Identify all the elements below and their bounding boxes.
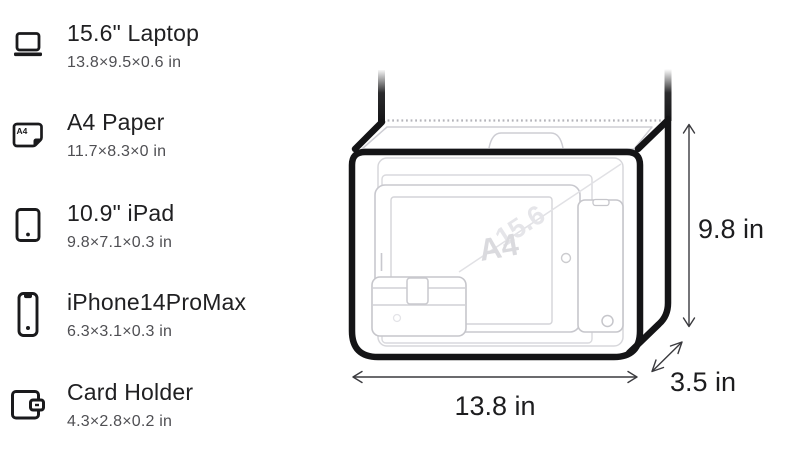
height-dimension-label: 9.8 in (698, 214, 764, 244)
bag-size-comparison-diagram: 15.6" Laptop 13.8×9.5×0.6 in A4 A4 Paper… (0, 0, 800, 455)
shoulder-straps (382, 69, 669, 122)
bag-top-flap (362, 127, 652, 149)
width-arrow (353, 372, 637, 383)
depth-dimension-label: 3.5 in (670, 367, 736, 397)
watermark-a4: A4 (476, 226, 522, 267)
bag-contents: 15.6 A4 (372, 158, 623, 346)
height-arrow (684, 125, 695, 327)
ghost-iphone (578, 200, 623, 333)
width-dimension-label: 13.8 in (454, 391, 535, 421)
bag-wireframe-drawing: 15.6 A4 (0, 0, 800, 455)
bag-top-right-edge (638, 121, 667, 149)
ghost-card-holder (372, 277, 466, 336)
